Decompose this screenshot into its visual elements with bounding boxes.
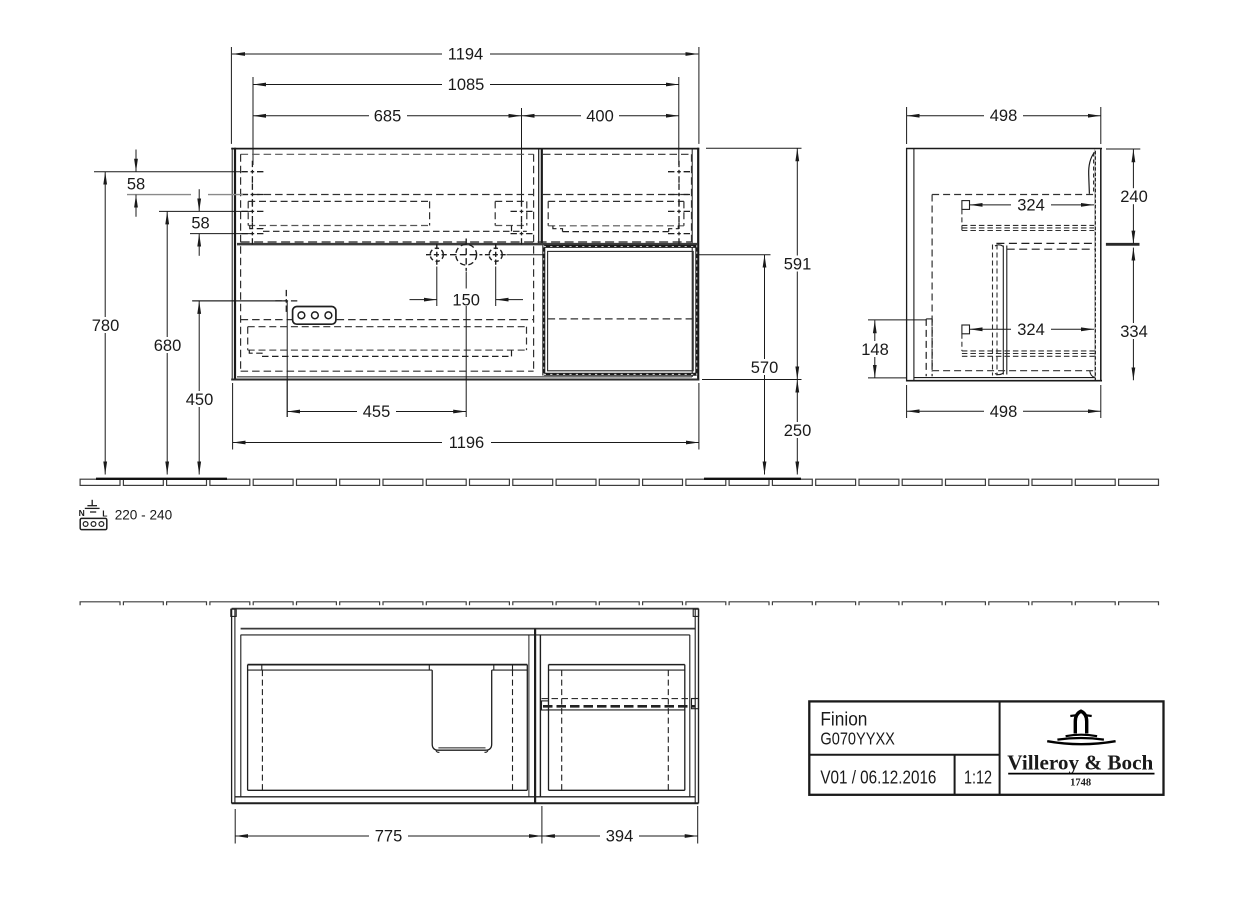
svg-text:455: 455 <box>363 403 391 421</box>
svg-text:58: 58 <box>191 214 209 232</box>
svg-text:324: 324 <box>1017 196 1045 214</box>
svg-text:775: 775 <box>375 828 403 846</box>
svg-text:394: 394 <box>606 828 634 846</box>
svg-text:Villeroy & Boch: Villeroy & Boch <box>1007 751 1153 775</box>
svg-text:591: 591 <box>784 256 812 274</box>
svg-text:780: 780 <box>92 317 120 335</box>
svg-text:334: 334 <box>1120 323 1148 341</box>
svg-text:685: 685 <box>374 107 402 125</box>
svg-text:250: 250 <box>784 422 812 440</box>
svg-text:400: 400 <box>586 107 614 125</box>
svg-text:680: 680 <box>154 337 182 355</box>
svg-text:324: 324 <box>1017 321 1045 339</box>
svg-text:1085: 1085 <box>448 76 485 94</box>
svg-text:1:12: 1:12 <box>964 767 992 788</box>
svg-text:498: 498 <box>990 107 1018 125</box>
svg-text:1748: 1748 <box>1070 777 1091 788</box>
svg-text:450: 450 <box>186 391 214 409</box>
svg-text:220 - 240: 220 - 240 <box>115 507 173 522</box>
svg-text:498: 498 <box>990 403 1018 421</box>
svg-text:570: 570 <box>751 359 779 377</box>
svg-text:V01 / 06.12.2016: V01 / 06.12.2016 <box>820 767 936 788</box>
svg-text:L: L <box>102 508 107 518</box>
svg-text:148: 148 <box>861 341 889 359</box>
svg-text:G070YYXX: G070YYXX <box>820 728 895 748</box>
svg-text:1196: 1196 <box>449 434 484 452</box>
svg-text:N: N <box>79 508 85 518</box>
svg-text:1194: 1194 <box>448 46 483 64</box>
svg-text:240: 240 <box>1120 188 1148 206</box>
svg-text:58: 58 <box>127 175 145 193</box>
svg-text:150: 150 <box>452 291 480 309</box>
